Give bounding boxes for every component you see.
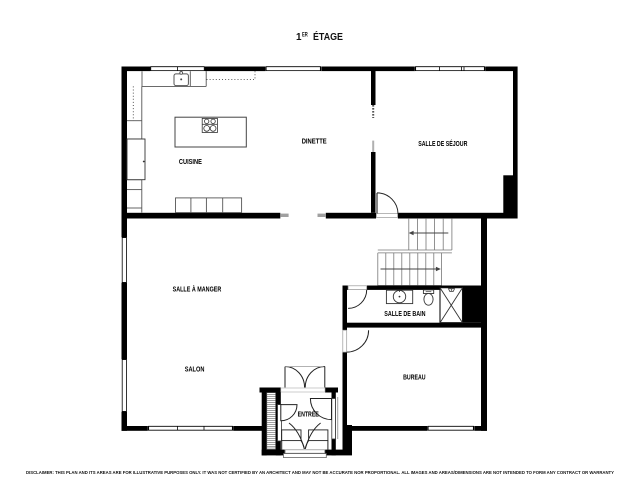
svg-text:CUISINE: CUISINE (179, 159, 202, 166)
svg-text:SALON: SALON (185, 366, 205, 373)
svg-text:ENTRÉE: ENTRÉE (298, 410, 319, 419)
svg-text:BUREAU: BUREAU (403, 375, 426, 382)
svg-text:1: 1 (296, 31, 302, 43)
svg-text:DINETTE: DINETTE (302, 139, 327, 146)
svg-text:SALLE DE SÉJOUR: SALLE DE SÉJOUR (418, 139, 467, 148)
svg-text:SALLE DE BAIN: SALLE DE BAIN (384, 311, 425, 318)
svg-text:DISCLAIMER: THIS PLAN AND ITS: DISCLAIMER: THIS PLAN AND ITS AREAS ARE … (26, 470, 614, 475)
svg-text:ÉTAGE: ÉTAGE (313, 30, 343, 43)
svg-text:SALLE À MANGER: SALLE À MANGER (173, 285, 222, 294)
svg-text:ER: ER (302, 33, 308, 39)
